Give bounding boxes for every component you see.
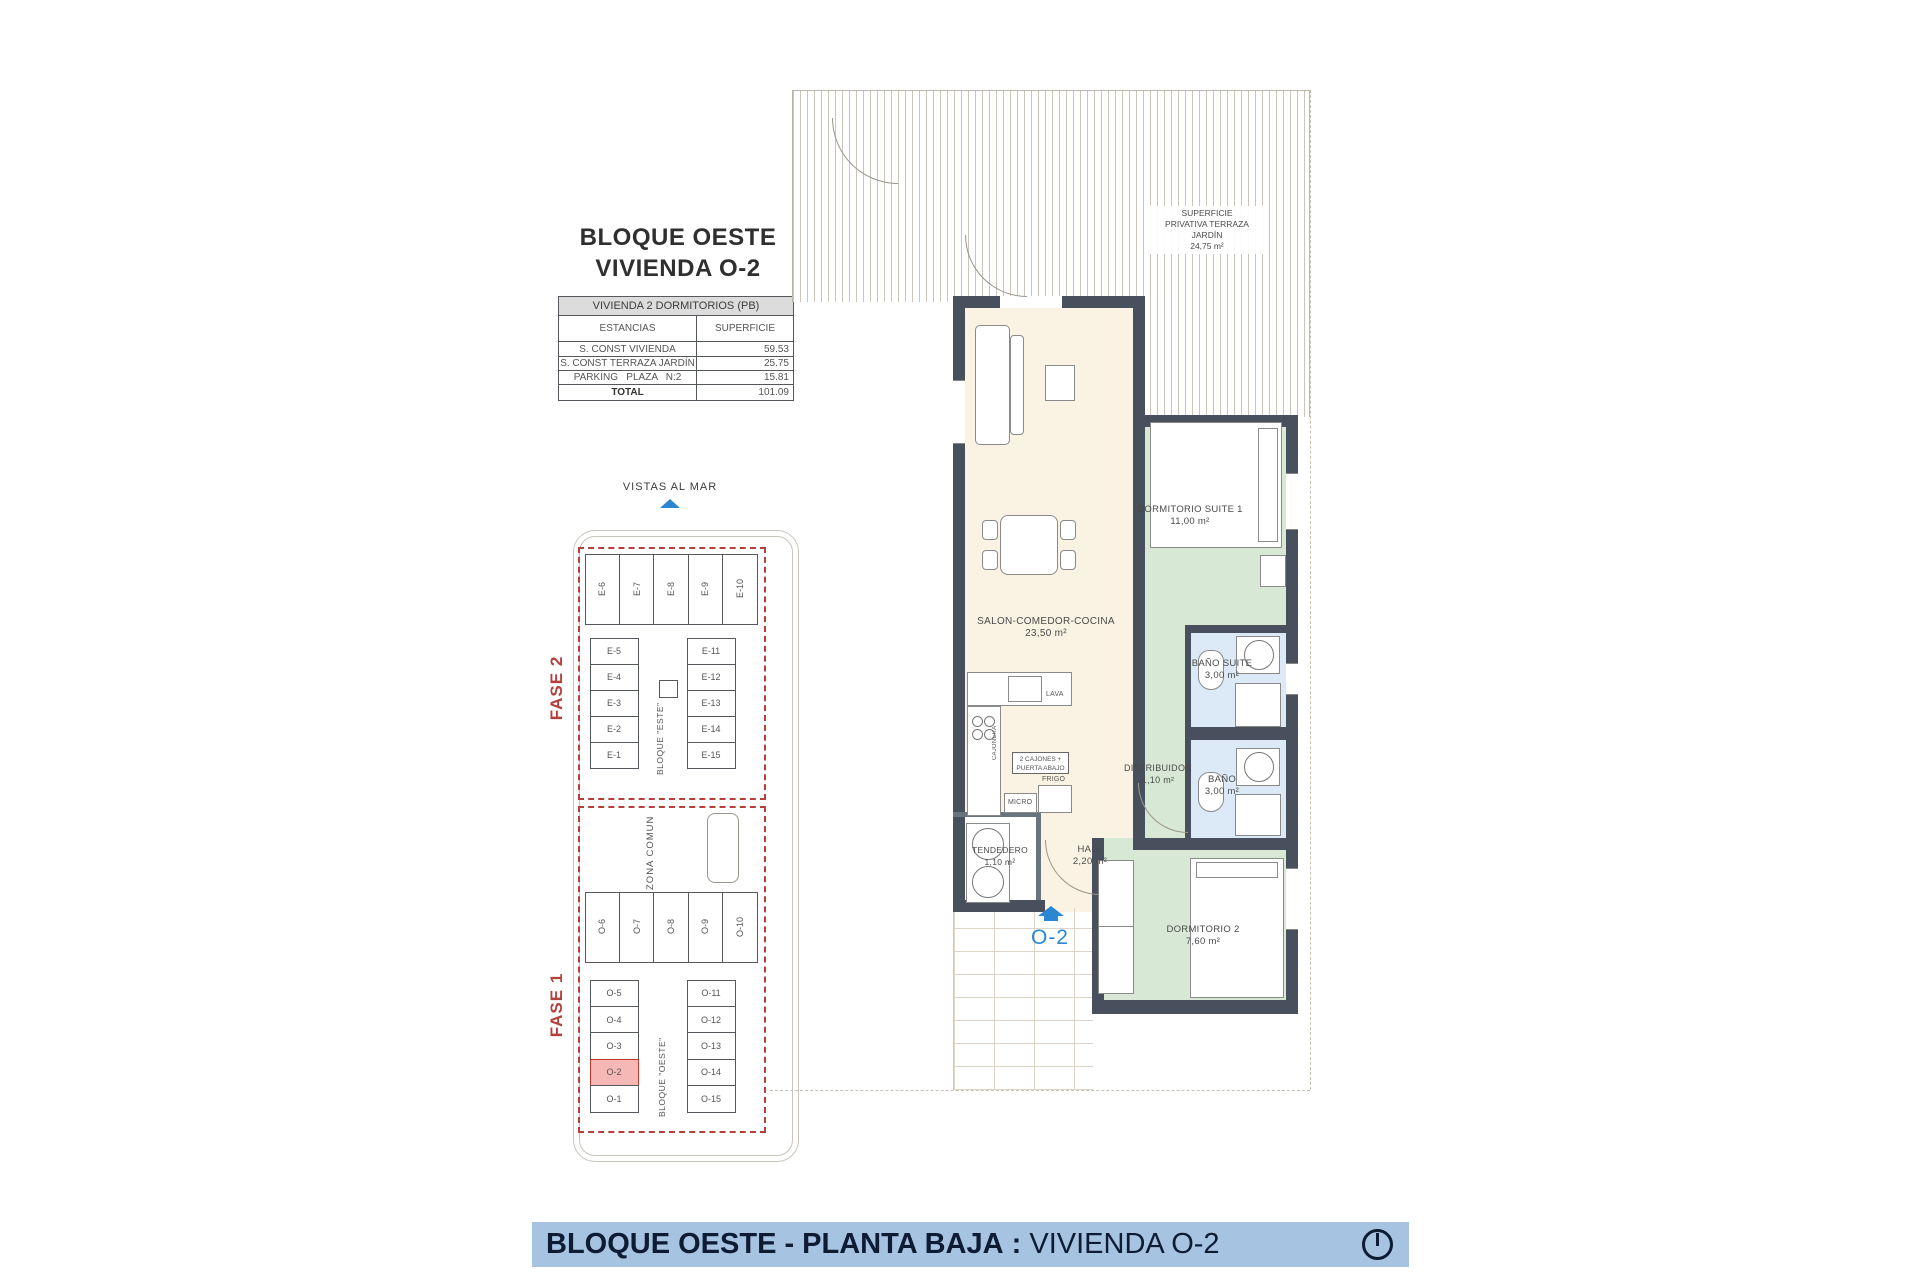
sofa-icon [975, 325, 1010, 445]
dormitorio2-label: DORMITORIO 2 7,60 m² [1143, 924, 1263, 948]
pool [707, 813, 739, 883]
burner-icon [972, 729, 983, 740]
north-indicator-icon [1362, 1229, 1393, 1260]
bloque-oeste-label: BLOQUE "OESTE" [657, 992, 667, 1117]
terrace-label-line: 24,75 m² [1148, 241, 1266, 252]
unit-cell: E-13 [687, 690, 736, 717]
burner-icon [972, 716, 983, 727]
unit-label: O-10 [735, 917, 745, 937]
unit-cell: E-9 [688, 554, 723, 625]
unit-label: E-7 [632, 582, 642, 596]
bloque-este-top-row: E-6 E-7 E-8 E-9 E-10 [585, 554, 757, 624]
unit-cell: E-5 [590, 638, 639, 665]
unit-label: E-6 [597, 582, 607, 596]
table-row: S. CONST TERRAZA JARDÍN 25.75 [559, 357, 793, 371]
room-name: BAÑO SUITE [1162, 658, 1282, 670]
terrace-label-line: PRIVATIVA TERRAZA [1148, 219, 1266, 230]
unit-label: O-5 [606, 988, 621, 998]
unit-cell: O-4 [590, 1006, 639, 1033]
washer-icon [972, 866, 1004, 898]
unit-cell: O-1 [590, 1085, 639, 1112]
unit-label: O-14 [701, 1067, 721, 1077]
distribuidor-label: DISTRIBUIDOR 1,10 m² [1098, 762, 1218, 786]
unit-cell: O-7 [619, 892, 654, 963]
unit-label: O-11 [701, 988, 720, 998]
fase1-label: FASE 1 [547, 965, 567, 1045]
wall [1185, 625, 1298, 633]
unit-label: O-1 [606, 1094, 621, 1104]
sofa-icon [1010, 335, 1024, 435]
unit-cell: O-5 [590, 980, 639, 1007]
unit-label: E-1 [607, 750, 621, 760]
zona-comun-label: ZONA COMUN [645, 808, 656, 890]
table-total-row: TOTAL 101.09 [559, 385, 793, 400]
sink-icon [1008, 676, 1042, 702]
base-rect [1044, 916, 1058, 921]
terrace-garden-side [1143, 302, 1310, 417]
unit-label: E-3 [607, 698, 621, 708]
window-opening [1286, 473, 1298, 530]
shower-icon [1235, 683, 1281, 727]
unit-label: E-10 [735, 579, 745, 598]
pillow-icon [1196, 862, 1278, 878]
unit-label: E-14 [701, 724, 720, 734]
col-estancias: ESTANCIAS [559, 316, 697, 341]
unit-cell: O-6 [585, 892, 620, 963]
plot-limit-bottom [770, 1090, 1310, 1091]
unit-label: E-12 [701, 672, 720, 682]
wall [1185, 727, 1298, 740]
chair-icon [982, 520, 998, 540]
plan-sheet: BLOQUE OESTE VIVIENDA O-2 VIVIENDA 2 DOR… [0, 0, 1920, 1280]
hall-label: HALL 2,20 m² [1040, 844, 1140, 868]
sea-direction-icon [660, 499, 680, 508]
unit-label: E-4 [607, 672, 621, 682]
unit-label: E-11 [702, 646, 720, 656]
total-label: TOTAL [559, 385, 697, 400]
floor-plan: SUPERFICIE PRIVATIVA TERRAZA JARDÍN 24,7… [770, 88, 1315, 1098]
plot-limit-right [1310, 90, 1311, 1090]
north-needle [1376, 1233, 1379, 1246]
bano-suite-label: BAÑO SUITE 3,00 m² [1162, 658, 1282, 682]
wardrobe-icon [1098, 860, 1134, 994]
unit-tag: O-2 [1010, 926, 1090, 950]
room-name: HALL [1040, 844, 1140, 856]
roof-triangle [1038, 906, 1064, 916]
unit-label: E-8 [666, 582, 676, 596]
terrace-label-line: JARDÍN [1148, 230, 1266, 241]
fridge-icon [1038, 785, 1072, 813]
salon-label: SALON-COMEDOR-COCINA 23,50 m² [966, 616, 1126, 640]
cajonera-label: CAJONERA [992, 708, 998, 760]
table-row: S. CONST VIVIENDA 59.53 [559, 342, 793, 357]
chair-icon [982, 550, 998, 570]
wall [1133, 838, 1298, 850]
room-area: 1,10 m² [950, 856, 1050, 868]
room-area: 23,50 m² [966, 628, 1126, 640]
footer-separator: : [1012, 1228, 1030, 1260]
entrance-arrow-icon [1038, 906, 1064, 922]
unit-cell: O-8 [653, 892, 688, 963]
bloque-oeste-top-row: O-6 O-7 O-8 O-9 O-10 [585, 892, 757, 962]
bloque-este-left-col: E-5 E-4 E-3 E-2 E-1 [590, 638, 638, 768]
row-label: S. CONST TERRAZA JARDÍN [559, 357, 697, 370]
bloque-este-right-col: E-11 E-12 E-13 E-14 E-15 [687, 638, 735, 768]
frigo-label: FRIGO [1042, 776, 1065, 783]
fase2-label: FASE 2 [547, 648, 567, 728]
unit-cell: E-15 [687, 742, 736, 769]
unit-label: O-7 [632, 919, 642, 934]
chair-icon [1060, 550, 1076, 570]
surface-table-title: VIVIENDA 2 DORMITORIOS (PB) [559, 297, 793, 316]
unit-label: O-13 [701, 1041, 721, 1051]
table-row: PARKING PLAZA N:2 15.81 [559, 371, 793, 385]
unit-cell: O-15 [687, 1085, 736, 1112]
unit-cell: O-14 [687, 1059, 736, 1086]
unit-cell: E-7 [619, 554, 654, 625]
door-opening [1000, 296, 1062, 308]
room-area: 3,00 m² [1162, 670, 1282, 682]
chair-icon [1060, 520, 1076, 540]
bloque-este-label: BLOQUE "ESTE" [655, 650, 665, 775]
unit-label: O-3 [606, 1041, 621, 1051]
footer-banner: BLOQUE OESTE - PLANTA BAJA : VIVIENDA O-… [532, 1222, 1409, 1267]
unit-cell: E-4 [590, 664, 639, 691]
unit-cell: E-1 [590, 742, 639, 769]
unit-cell: O-3 [590, 1032, 639, 1059]
unit-cell: E-10 [722, 554, 757, 625]
terrace-label: SUPERFICIE PRIVATIVA TERRAZA JARDÍN 24,7… [1148, 206, 1266, 254]
unit-label: O-8 [666, 919, 676, 934]
dining-table-icon [1000, 515, 1058, 575]
unit-cell: E-11 [687, 638, 736, 665]
tendedero-label: TENDEDERO 1,10 m² [950, 844, 1050, 868]
unit-label: O-6 [597, 919, 607, 934]
unit-label: O-4 [606, 1015, 621, 1025]
room-name: DISTRIBUIDOR [1098, 762, 1218, 774]
vistas-al-mar-label: VISTAS AL MAR [600, 481, 740, 493]
bloque-oeste-left-col: O-5 O-4 O-3 O-2 O-1 [590, 980, 638, 1112]
coffee-table-icon [1045, 365, 1075, 401]
room-area: 3,00 m² [1162, 786, 1282, 798]
cajones-label: 2 CAJONES + PUERTA ABAJO [1012, 752, 1069, 774]
room-area: 2,20 m² [1040, 856, 1140, 868]
unit-cell: O-9 [688, 892, 723, 963]
suite-label: DORMITORIO SUITE 1 11,00 m² [1110, 504, 1270, 528]
footer-title-light: VIVIENDA O-2 [1029, 1228, 1219, 1260]
room-name: DORMITORIO SUITE 1 [1110, 504, 1270, 516]
unit-cell: E-3 [590, 690, 639, 717]
unit-label: E-15 [701, 750, 720, 760]
room-area: 11,00 m² [1110, 516, 1270, 528]
footer-colon: : [1012, 1228, 1022, 1260]
lava-label: LAVA [1046, 691, 1064, 698]
window-opening [953, 380, 965, 444]
window-opening [1286, 663, 1298, 695]
row-label: S. CONST VIVIENDA [559, 342, 697, 356]
unit-label: O-2 [606, 1067, 621, 1077]
surface-table-header-row: ESTANCIAS SUPERFICIE [559, 316, 793, 342]
window-opening [1286, 868, 1298, 930]
footer-title: BLOQUE OESTE - PLANTA BAJA : VIVIENDA O-… [532, 1228, 1220, 1261]
room-name: DORMITORIO 2 [1143, 924, 1263, 936]
surface-table: VIVIENDA 2 DORMITORIOS (PB) ESTANCIAS SU… [558, 296, 794, 401]
unit-label: E-13 [701, 698, 720, 708]
unit-label: O-9 [700, 919, 710, 934]
wardrobe-divider [1098, 926, 1134, 927]
room-name: TENDEDERO [950, 844, 1050, 856]
unit-cell: E-2 [590, 716, 639, 743]
unit-label: O-15 [701, 1094, 721, 1104]
unit-cell: O-13 [687, 1032, 736, 1059]
unit-cell: O-12 [687, 1006, 736, 1033]
bloque-oeste-right-col: O-11 O-12 O-13 O-14 O-15 [687, 980, 735, 1112]
unit-cell-highlighted: O-2 [590, 1059, 639, 1086]
room-name: SALON-COMEDOR-COCINA [966, 616, 1126, 628]
unit-label: O-12 [701, 1015, 721, 1025]
terrace-label-line: SUPERFICIE [1148, 208, 1266, 219]
unit-cell: E-12 [687, 664, 736, 691]
micro-label: MICRO [1008, 799, 1032, 806]
site-plan: FASE 2 FASE 1 E-6 E-7 E-8 E-9 E-10 E-5 E… [575, 530, 797, 1162]
unit-label: E-5 [607, 646, 621, 656]
footer-title-bold: BLOQUE OESTE - PLANTA BAJA [546, 1228, 1004, 1260]
room-area: 1,10 m² [1098, 774, 1218, 786]
unit-cell: E-8 [653, 554, 688, 625]
unit-cell: E-6 [585, 554, 620, 625]
unit-label: E-2 [607, 724, 621, 734]
unit-cell: E-14 [687, 716, 736, 743]
room-area: 7,60 m² [1143, 936, 1263, 948]
wall [1092, 1000, 1298, 1014]
unit-cell: O-10 [722, 892, 757, 963]
nightstand-icon [1260, 555, 1286, 587]
row-label: PARKING PLAZA N:2 [559, 371, 697, 384]
shower-icon [1235, 794, 1281, 836]
unit-label: E-9 [700, 582, 710, 596]
unit-cell: O-11 [687, 980, 736, 1007]
